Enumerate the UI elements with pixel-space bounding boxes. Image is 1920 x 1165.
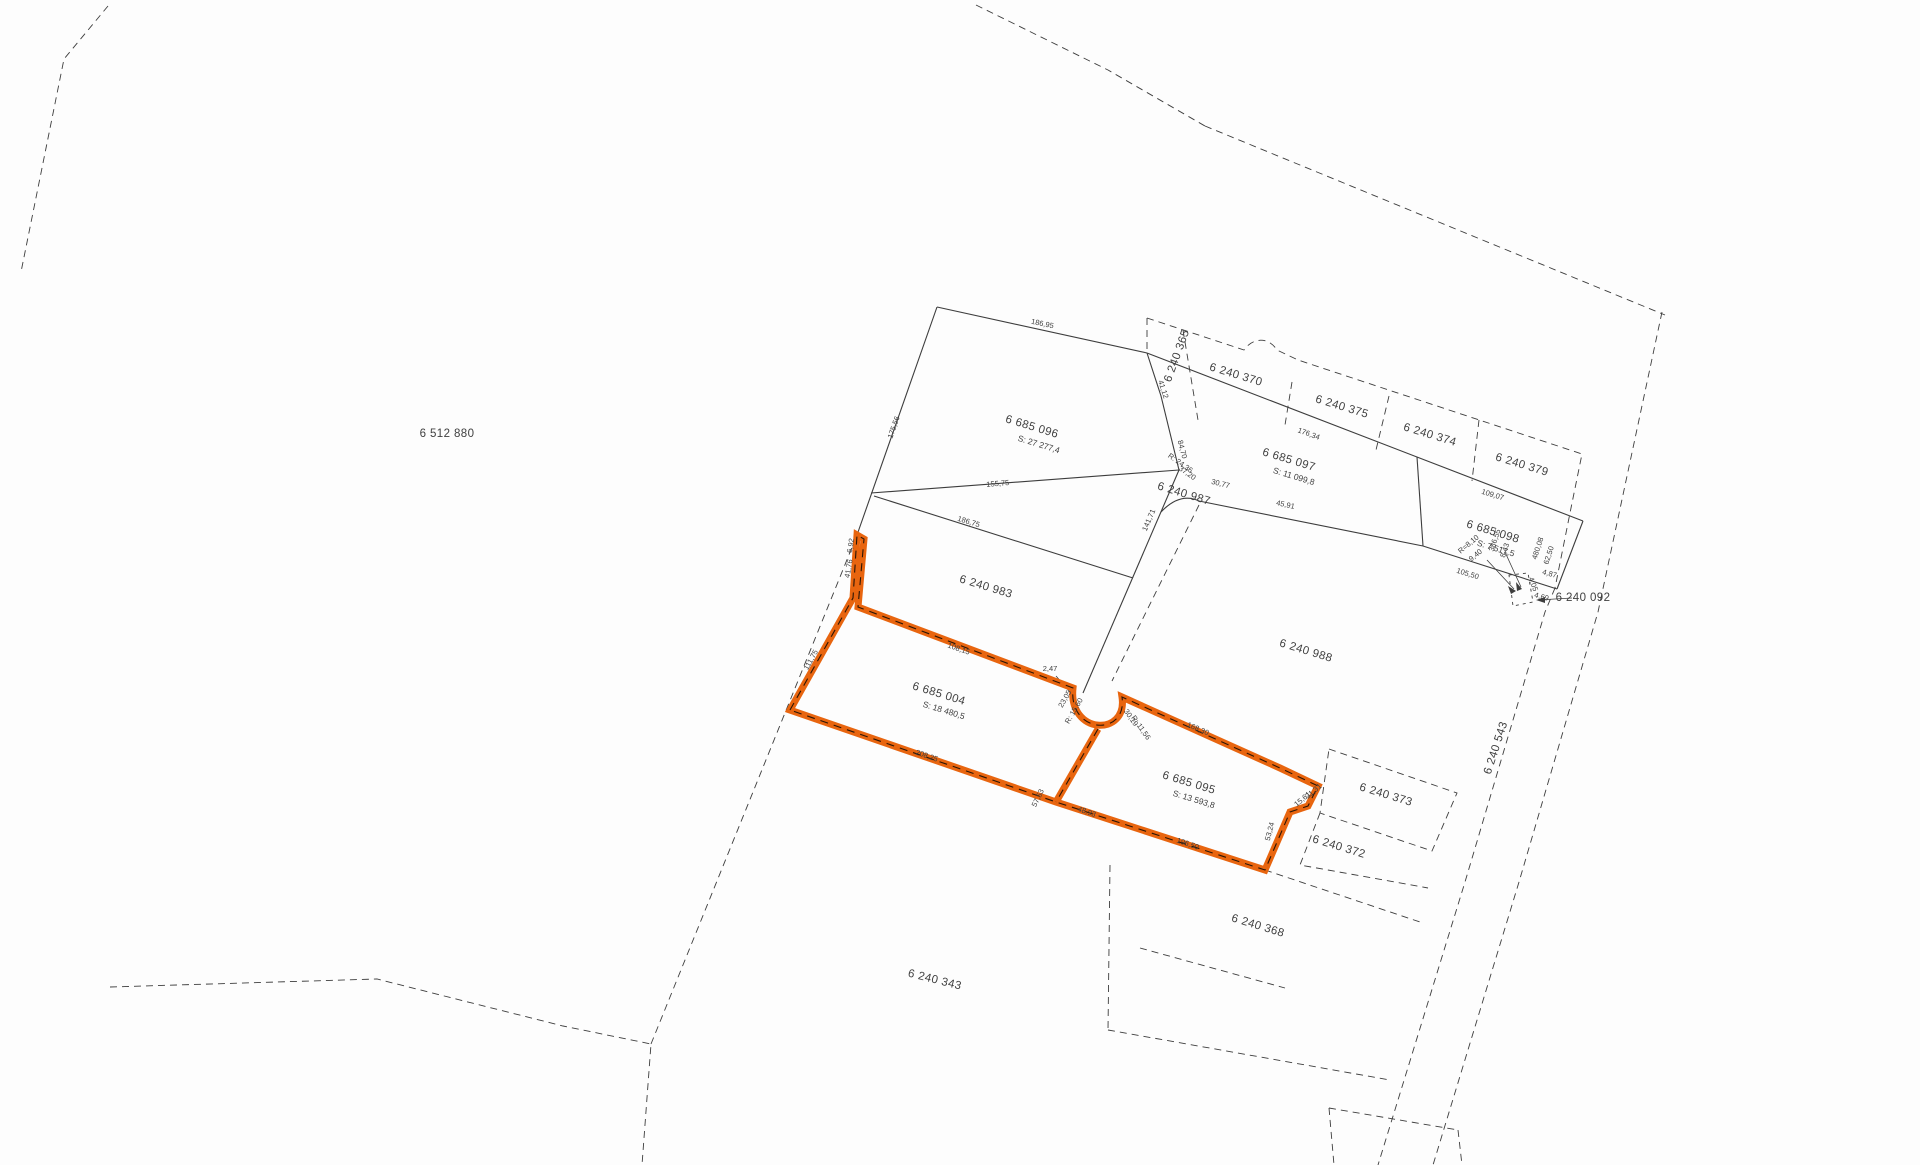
cadastral-map-view: 6 685 096S: 27 277,46 685 097S: 11 099,8… [0,0,1920,1165]
road-culdesac-east-edge [1112,505,1199,681]
parcel-number-label[interactable]: 6 240 373 [1358,781,1414,808]
parcel-number-label[interactable]: 6 512 880 [420,428,475,440]
measurement-label: 4,87 [1541,567,1557,579]
divider-370-375 [1285,382,1292,425]
measurement-label: 4,69 [1533,590,1549,602]
parcel-368-inner-edge [1140,948,1285,988]
parcel-number-label[interactable]: 6 240 983 [958,573,1014,600]
parcel-number-label[interactable]: 6 240 343 [907,968,963,993]
measurement-label: 141,71 [1140,508,1157,533]
boundary-dashed-topleft [21,6,108,272]
parcel-097-098-divider [1417,457,1423,546]
parcel-number-label[interactable]: 6 240 370 [1208,361,1264,388]
parcel-number-label[interactable]: 6 240 372 [1311,833,1367,860]
parcel-983-north-edge [874,496,1133,578]
measurement-label: 186,75 [956,514,981,529]
selected-parcel-outline-centerline [790,535,1318,870]
boundary-dashed-upper-row [1147,318,1582,588]
parcel-097-south-edge [1199,501,1423,546]
parcel-096-north-edge [937,307,1147,353]
measurement-label: 30,77 [1210,477,1230,490]
measurement-label: 45,91 [1275,498,1295,511]
measurement-label: 9,40 [1467,547,1484,563]
parcel-368-north-edge [1265,870,1420,922]
highlighted-parcel-group[interactable] [790,535,1318,870]
road-culdesac-west-edge [1083,470,1179,693]
block-north-line [1147,353,1583,521]
road-543-east-edge [1433,312,1662,1165]
parcel-368-west-edge [1108,865,1110,1030]
boundary-dashed-west-diagonal [651,535,857,1044]
cadastral-map: 6 685 096S: 27 277,46 685 097S: 11 099,8… [0,0,1920,1165]
parcel-number-label[interactable]: 6 240 379 [1494,451,1550,478]
parcel-096-south-edge [871,470,1179,493]
bottom-notch-edge-2 [1329,1108,1458,1130]
parcel-number-label[interactable]: 6 240 374 [1402,421,1458,449]
parcel-number-label[interactable]: 6 240 988 [1278,637,1334,664]
parcel-098-east-edge [1557,521,1583,589]
road-543-west-edge [1378,588,1555,1165]
dashed-boundaries-layer [21,5,1665,1165]
measurement-label: 53,24 [1263,821,1277,841]
parcel-number-label[interactable]: 6 240 375 [1314,393,1370,420]
boundary-dashed-top-center [976,5,1205,126]
boundary-dashed-north-block [1205,126,1665,315]
labels-layer: 6 685 096S: 27 277,46 685 097S: 11 099,8… [420,317,1611,993]
measurement-label: 196,50 [1175,836,1200,852]
measurement-label: 48,93 [1076,804,1097,819]
measurement-label: 176,34 [1297,425,1322,441]
bottom-notch-edge-3 [1458,1130,1462,1165]
measurement-label: 105,50 [1455,566,1480,581]
measurement-label: 108,15 [946,641,971,657]
measurement-label: 175,56 [886,415,902,440]
bottom-notch-edge-1 [1329,1108,1334,1165]
boundary-dashed-bottomleft-step [110,979,651,1165]
parcel-number-label[interactable]: 6 240 368 [1230,912,1286,939]
measurement-label: 2,47 [1043,664,1058,673]
parcel-number-label[interactable]: 6 240 543 [1482,720,1510,776]
parcel-number-label[interactable]: 6 240 092 [1556,592,1611,604]
divider-374-379 [1472,420,1479,481]
measurement-label: 155,75 [986,478,1010,489]
selected-parcel-outline[interactable] [790,535,1318,870]
parcel-368-south-edge [1108,1030,1390,1080]
measurement-label: 208,25 [914,748,939,764]
measurement-label: 62,50 [1541,545,1555,566]
